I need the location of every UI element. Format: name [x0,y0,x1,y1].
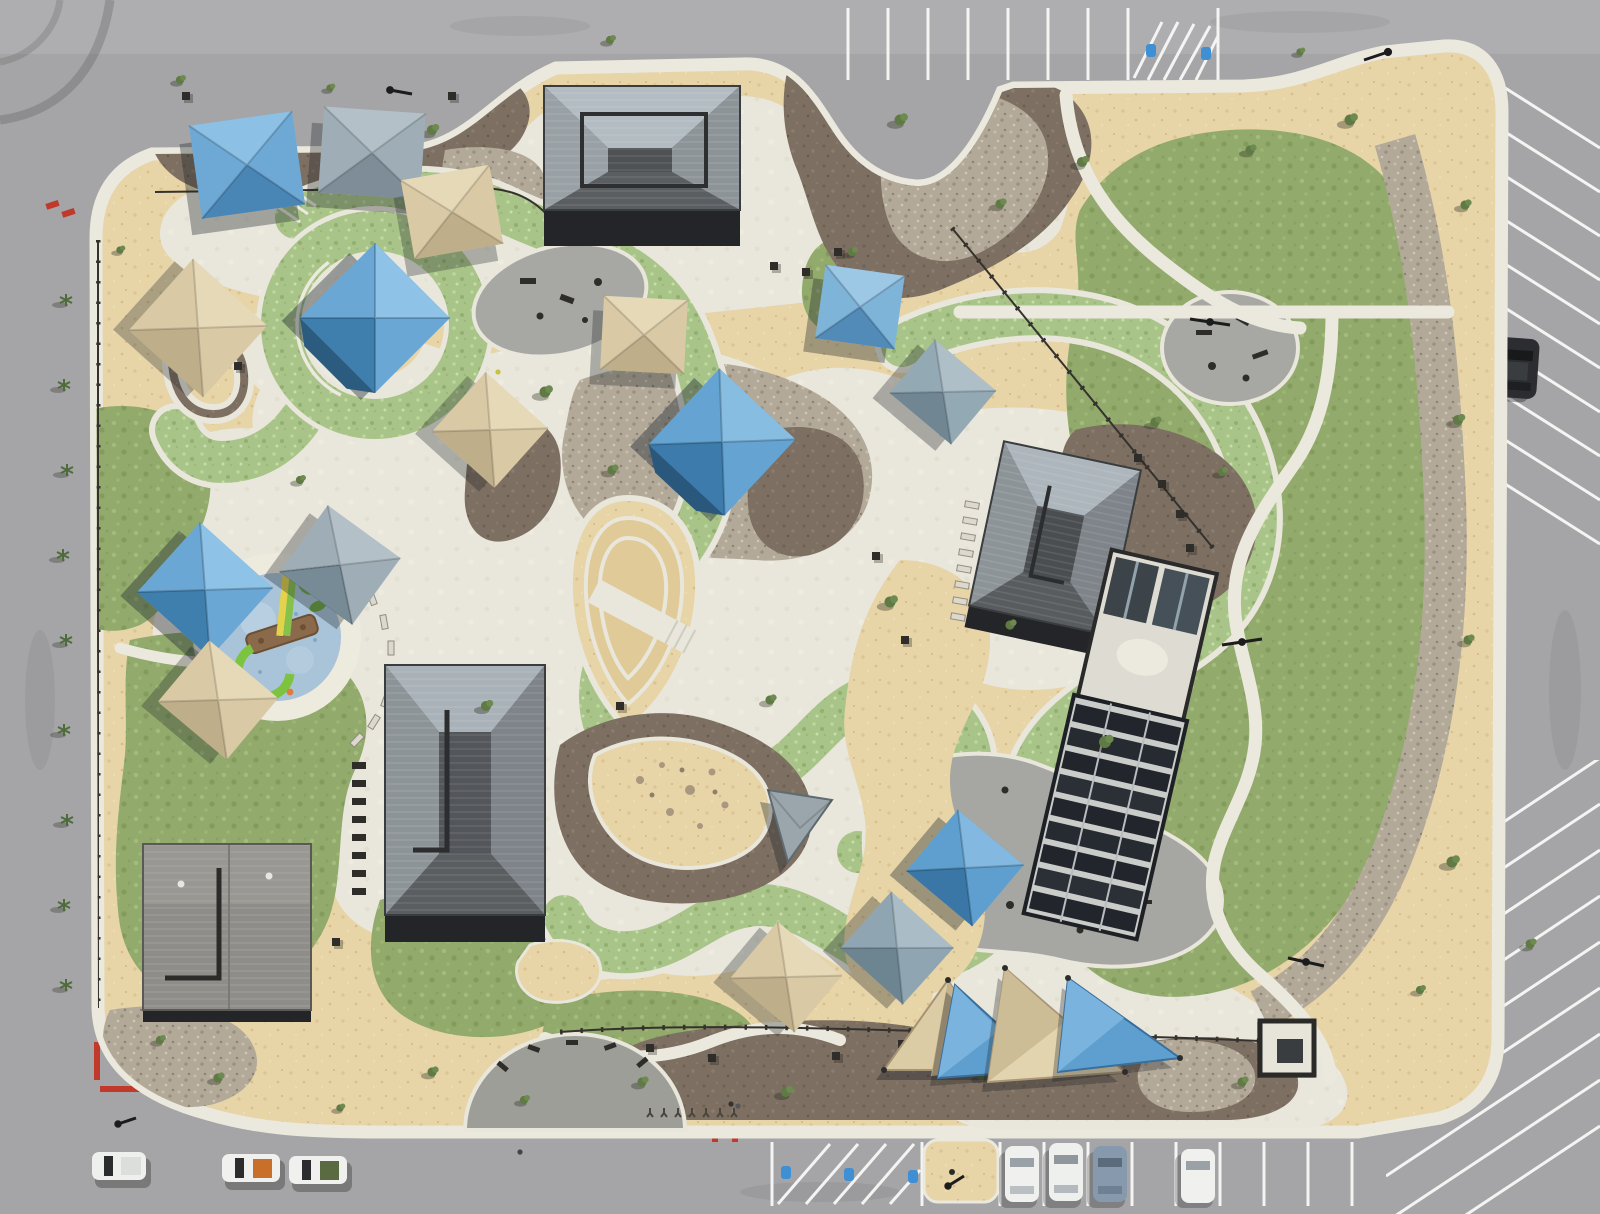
parking-island [924,1140,998,1202]
sail-blue-nw [177,111,307,235]
restroom-building [143,844,311,1022]
park-aerial-scene: Aerial drone photo of a desert community… [0,0,1600,1214]
aerial-park-photo: Aerial drone photo of a desert community… [0,0,1600,1214]
sail-tan-pavilion [589,295,688,389]
entry-kiosk [1257,1021,1315,1078]
cars-south [999,1143,1215,1208]
sail-tan-n [391,165,506,277]
person-at-splash-pad [287,689,294,696]
small-sand-patch [516,941,600,1003]
north-pavilion [544,86,740,246]
